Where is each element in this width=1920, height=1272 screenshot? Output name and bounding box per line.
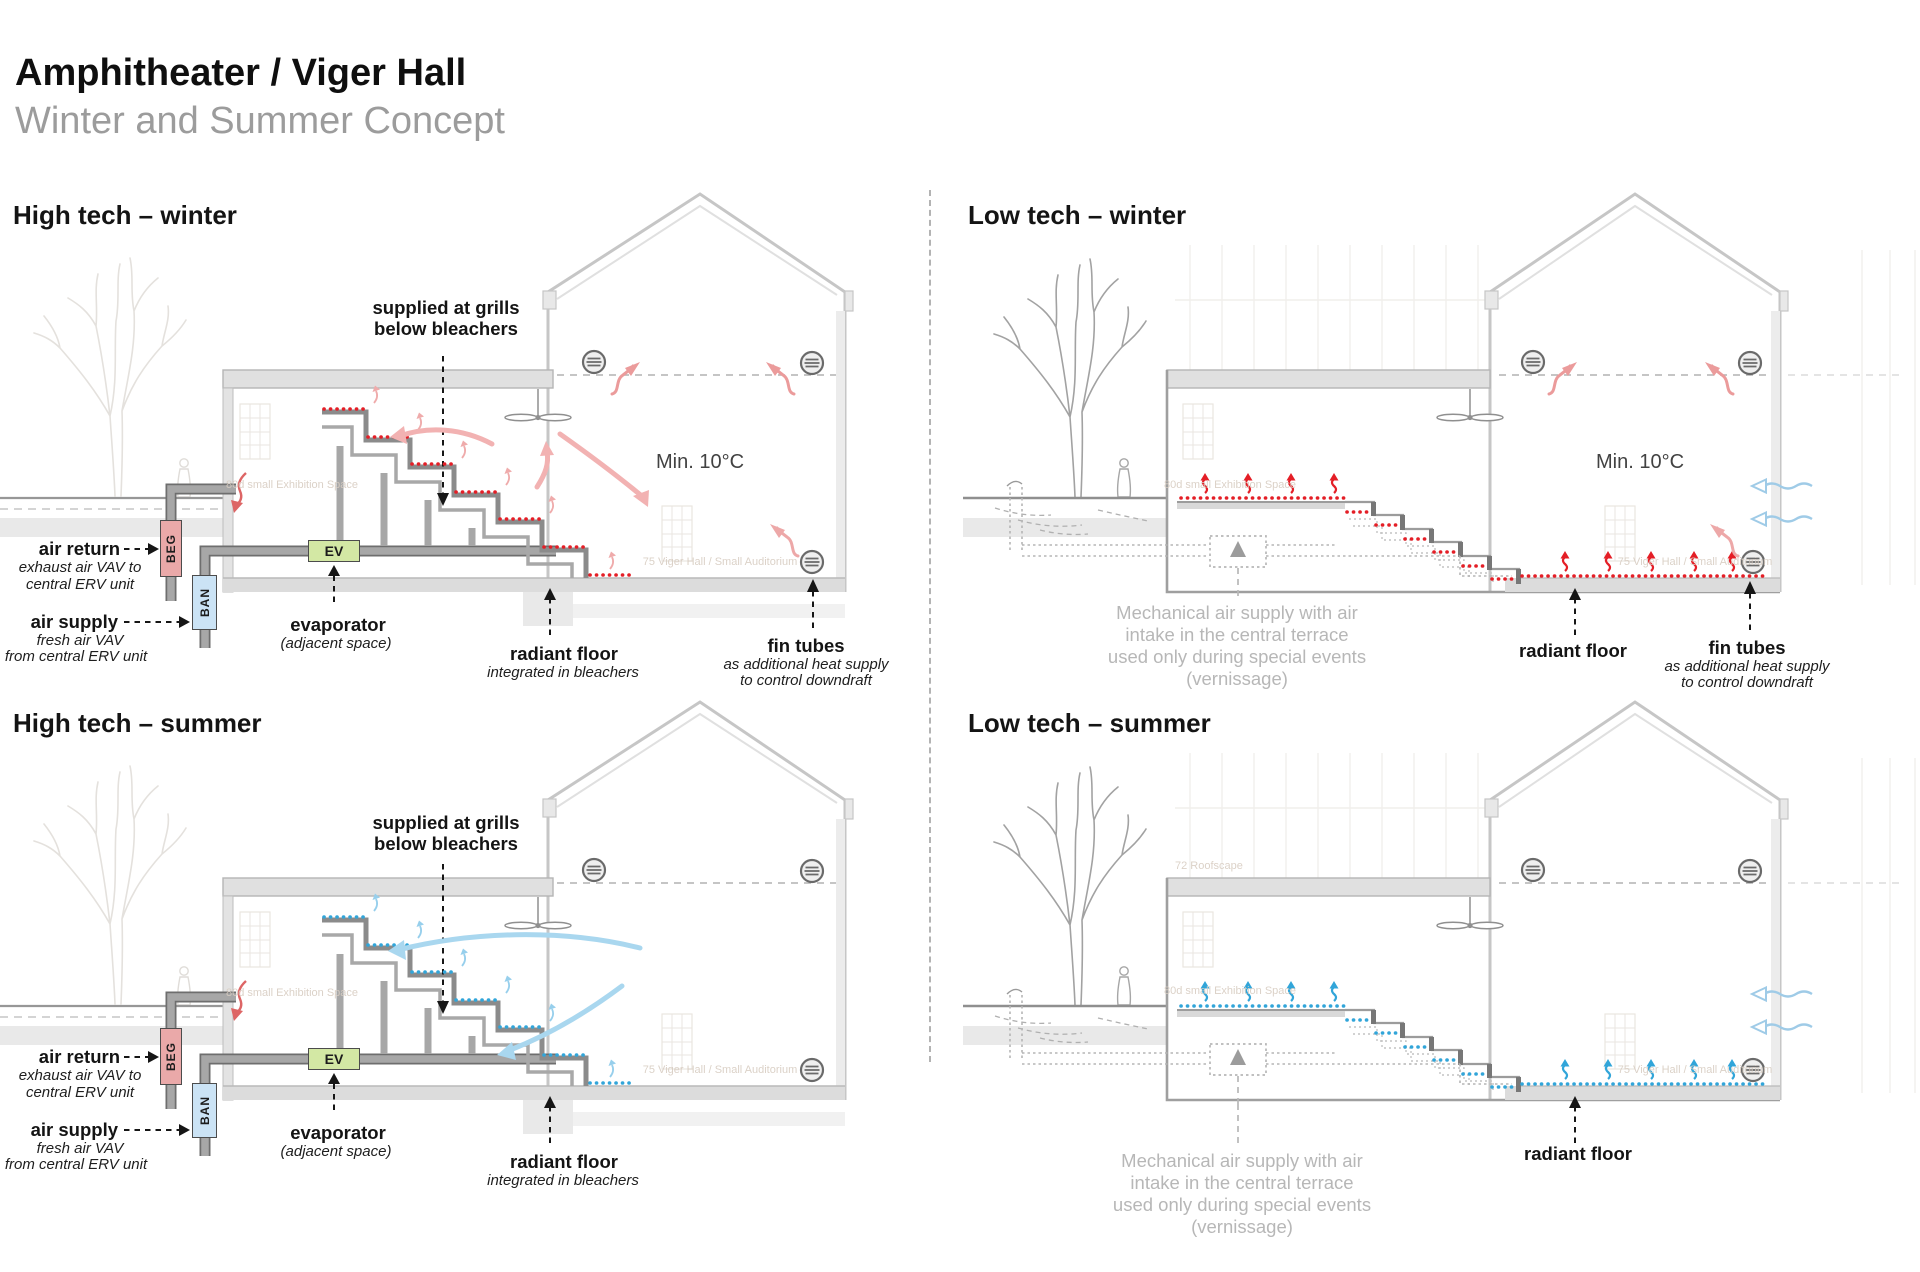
label-air-return-sub1: exhaust air VAV to: [19, 559, 142, 576]
bg-text-viger-hall: 75 Viger Hall / Small Auditorium: [643, 556, 797, 568]
label-min-temp: Min. 10°C: [1596, 451, 1684, 474]
label-mech-supply-2: intake in the central terrace: [1125, 624, 1348, 646]
low-tech-summer-section: [963, 702, 1915, 1143]
label-mech-supply-3: used only during special events: [1113, 1194, 1371, 1216]
ban-box: BAN: [192, 1083, 217, 1138]
label-air-return-sub2: central ERV unit: [26, 1084, 134, 1101]
label-mech-supply-1: Mechanical air supply with air: [1116, 602, 1358, 624]
heading-low-tech-summer: Low tech – summer: [968, 708, 1211, 739]
label-radiant-floor: radiant floor: [510, 643, 618, 665]
label-radiant-floor-sub: integrated in bleachers: [487, 664, 639, 681]
label-mech-supply-2: intake in the central terrace: [1130, 1172, 1353, 1194]
label-evaporator: evaporator: [290, 1122, 386, 1144]
label-air-return: air return: [39, 1046, 120, 1068]
page-title: Amphitheater / Viger Hall: [15, 52, 466, 95]
label-supplied-grills-1: supplied at grills: [373, 812, 520, 834]
label-fin-tubes-sub1: as additional heat supply: [723, 656, 888, 673]
label-supplied-grills-2: below bleachers: [374, 833, 518, 855]
label-evaporator: evaporator: [290, 614, 386, 636]
page: Amphitheater / Viger Hall Winter and Sum…: [0, 0, 1920, 1272]
label-air-supply-sub2: from central ERV unit: [5, 1156, 147, 1173]
label-mech-supply-4: (vernissage): [1186, 668, 1288, 690]
heading-high-tech-summer: High tech – summer: [13, 708, 262, 739]
bg-text-exhibition: 80d small Exhibition Space: [226, 479, 358, 491]
ev-box: EV: [308, 540, 360, 562]
beg-box: BEG: [160, 520, 182, 577]
bg-text-viger-hall: 75 Viger Hall / Small Auditorium: [1618, 1064, 1772, 1076]
page-subtitle: Winter and Summer Concept: [15, 100, 505, 143]
low-tech-winter-section: [963, 194, 1915, 635]
label-air-supply-sub2: from central ERV unit: [5, 648, 147, 665]
label-radiant-floor: radiant floor: [510, 1151, 618, 1173]
label-min-temp: Min. 10°C: [656, 451, 744, 474]
label-fin-tubes: fin tubes: [1708, 637, 1785, 659]
bg-text-exhibition: 80d small Exhibition Space: [226, 987, 358, 999]
label-fin-tubes-sub2: to control downdraft: [1681, 674, 1813, 691]
bg-text-roofscape: 72 Roofscape: [1175, 860, 1243, 872]
ban-box: BAN: [192, 575, 217, 630]
label-air-supply-sub1: fresh air VAV: [37, 1140, 124, 1157]
label-evaporator-sub: (adjacent space): [281, 635, 392, 652]
label-fin-tubes-sub1: as additional heat supply: [1664, 658, 1829, 675]
label-mech-supply-3: used only during special events: [1108, 646, 1366, 668]
label-mech-supply-4: (vernissage): [1191, 1216, 1293, 1238]
bg-text-exhibition: 80d small Exhibition Space: [1164, 985, 1296, 997]
bg-text-exhibition: 80d small Exhibition Space: [1164, 479, 1296, 491]
label-radiant-floor: radiant floor: [1524, 1143, 1632, 1165]
label-radiant-floor: radiant floor: [1519, 640, 1627, 662]
label-evaporator-sub: (adjacent space): [281, 1143, 392, 1160]
label-radiant-floor-sub: integrated in bleachers: [487, 1172, 639, 1189]
label-air-return-sub1: exhaust air VAV to: [19, 1067, 142, 1084]
beg-box: BEG: [160, 1028, 182, 1085]
label-supplied-grills-1: supplied at grills: [373, 297, 520, 319]
label-air-return: air return: [39, 538, 120, 560]
label-supplied-grills-2: below bleachers: [374, 318, 518, 340]
ev-box: EV: [308, 1048, 360, 1070]
label-air-supply-sub1: fresh air VAV: [37, 632, 124, 649]
label-mech-supply-1: Mechanical air supply with air: [1121, 1150, 1363, 1172]
label-fin-tubes: fin tubes: [767, 635, 844, 657]
bg-text-viger-hall: 75 Viger Hall / Small Auditorium: [643, 1064, 797, 1076]
label-fin-tubes-sub2: to control downdraft: [740, 672, 872, 689]
label-air-return-sub2: central ERV unit: [26, 576, 134, 593]
heading-low-tech-winter: Low tech – winter: [968, 200, 1186, 231]
label-air-supply: air supply: [31, 611, 118, 633]
label-air-supply: air supply: [31, 1119, 118, 1141]
heading-high-tech-winter: High tech – winter: [13, 200, 237, 231]
bg-text-viger-hall: 75 Viger Hall / Small Auditorium: [1618, 556, 1772, 568]
quadrant-divider: [929, 190, 931, 1062]
